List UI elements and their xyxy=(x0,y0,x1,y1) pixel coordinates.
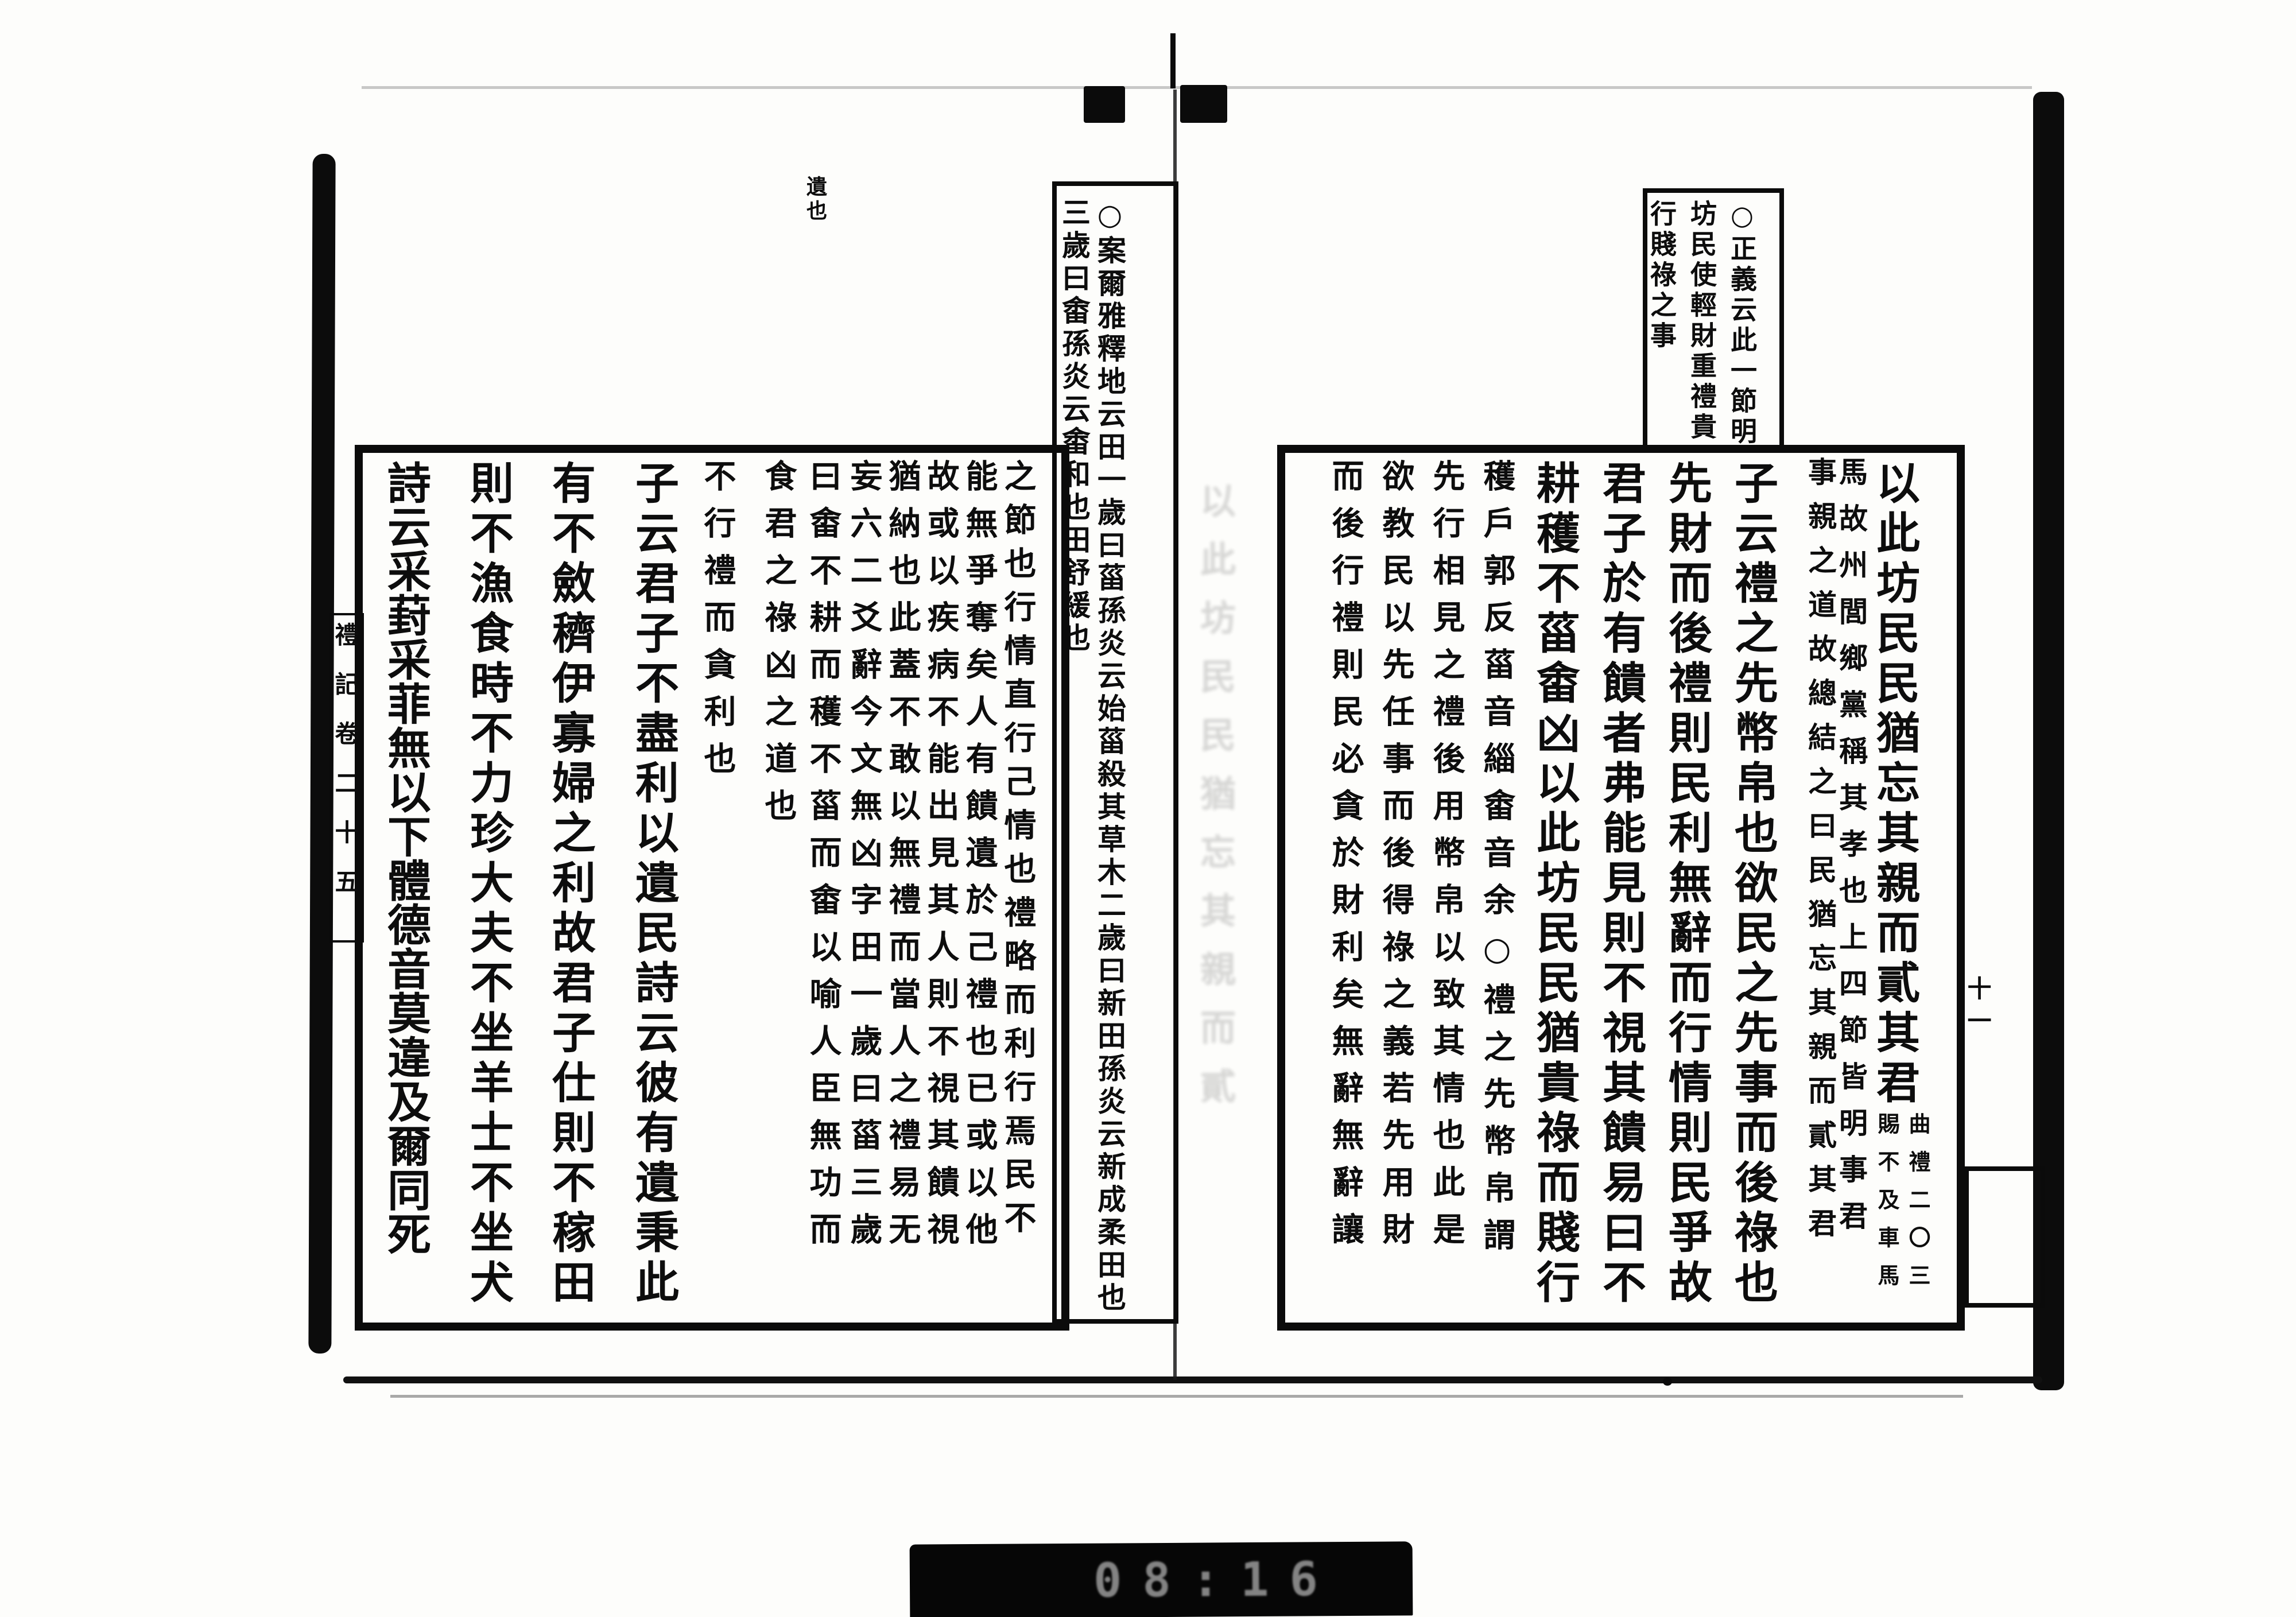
scanned-book-spread: 以此坊民民猶忘其親而貳 ○正義云此一節明 坊民使輕財重禮貴 行賤祿之事 以此坊民… xyxy=(0,0,2296,1617)
kanbun-inline-note: 曲禮二〇三 xyxy=(1907,1112,1929,1302)
kanbun-column-main: 詩云采葑采菲無以下體德音莫違及爾同死 xyxy=(383,460,427,1298)
margin-cartouche-box xyxy=(1964,1166,2045,1308)
spine-note-column: ○案爾雅釋地云田一歲曰菑孫炎云始菑殺其草木二歲曰新田孫炎云新成柔田也 xyxy=(1095,197,1124,1305)
commentary-column: 故或以疾病不能出見其人則不視其饋視 xyxy=(925,459,957,1300)
margin-title: 禮記卷二十五 xyxy=(333,622,357,932)
margin-gloss: 遺也 xyxy=(805,176,825,239)
leaf-number: 十一 xyxy=(1965,976,1989,1073)
ink-speck xyxy=(1663,1378,1672,1386)
film-counter-digits: 08:16 xyxy=(1093,1552,1339,1608)
commentary-column: 穫戶郭反菑音緇畬音余○禮之先幣帛謂 xyxy=(1481,459,1513,1300)
commentary-column: 猶納也此蓋不敢以無禮而當人之禮易无 xyxy=(886,459,918,1300)
film-fiducial-mark xyxy=(1084,86,1125,123)
head-note-column: 坊民使輕財重禮貴 xyxy=(1689,200,1715,441)
kanbun-column-main: 耕穫不菑畬凶以此坊民民猶貴祿而賤行 xyxy=(1533,460,1576,1298)
head-note-column: ○正義云此一節明 xyxy=(1729,200,1755,441)
head-note-column: 行賤祿之事 xyxy=(1649,200,1675,441)
kanbun-column-main: 有不斂穧伊寡婦之利故君子仕則不稼田 xyxy=(548,460,592,1298)
kanbun-column-main: 則不漁食時不力珍大夫不坐羊士不坐犬 xyxy=(466,460,510,1298)
kanbun-column-main: 先財而後禮則民利無辭而行情則民爭故 xyxy=(1665,460,1708,1298)
kanbun-inline-note: 賜不及車馬 xyxy=(1876,1112,1898,1302)
commentary-column: 不行禮而貪利也 xyxy=(701,459,734,1300)
commentary-column: 妄六二爻辭今文無凶字田一歲曰菑三歲 xyxy=(848,459,880,1300)
kanbun-column-main: 子云君子不盡利以遺民詩云彼有遺秉此 xyxy=(631,460,675,1298)
kanbun-column-main: 子云禮之先幣帛也欲民之先事而後祿也 xyxy=(1731,460,1774,1298)
commentary-column: 能無爭奪矣人有饋遺於己禮也已或以他 xyxy=(963,459,995,1300)
film-counter-bar: 08:16 xyxy=(910,1541,1413,1617)
commentary-column: 而後行禮則民必貪於財利矣無辭無辭讓 xyxy=(1329,459,1362,1300)
commentary-column: 先行相見之禮後用幣帛以致其情也此是 xyxy=(1430,459,1463,1300)
commentary-column: 食君之祿凶之道也 xyxy=(762,459,794,1300)
commentary-column: 曰畬不耕而穫不菑而畬以喻人臣無功而 xyxy=(807,459,839,1300)
book-bottom-edge-shadow xyxy=(390,1395,1963,1398)
kanbun-column-main: 君子於有饋者弗能見則不視其饋易曰不 xyxy=(1599,460,1642,1298)
book-bottom-edge xyxy=(343,1376,2042,1383)
commentary-column: 欲教民以先任事而後得祿之義若先用財 xyxy=(1380,459,1412,1300)
commentary-half-column: 事親之道故總結之曰民猶忘其親而貳其君 xyxy=(1806,457,1835,1306)
film-fiducial-mark xyxy=(1180,85,1227,123)
film-fiducial-line xyxy=(1170,33,1176,88)
gutter-ghost-text: 以此坊民民猶忘其親而貳 xyxy=(1197,482,1232,1274)
commentary-column: 之節也行情直行己情也禮略而利行焉民不 xyxy=(1002,459,1034,1300)
commentary-half-column: 馬故州閭鄉黨稱其孝也上四節皆明事君 xyxy=(1837,457,1865,1306)
